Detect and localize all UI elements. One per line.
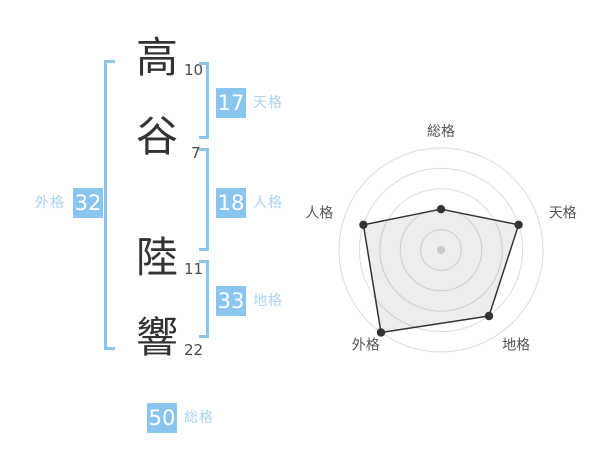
tenkaku-value-box: 17 bbox=[216, 88, 246, 118]
radar-vertex-dot bbox=[359, 221, 367, 229]
soukaku-value-box: 50 bbox=[147, 403, 177, 433]
name-char-1: 高 bbox=[134, 37, 180, 79]
radar-vertex-dot bbox=[377, 328, 385, 336]
jinkaku-value-box: 18 bbox=[216, 188, 246, 218]
radar-vertex-dot bbox=[485, 312, 493, 320]
stroke-count-4: 22 bbox=[184, 343, 203, 358]
tenkaku-label: 天格 bbox=[253, 96, 283, 110]
radar-vertex-dot bbox=[437, 205, 445, 213]
radar-axis-label: 地格 bbox=[502, 338, 530, 354]
gaikaku-label: 外格 bbox=[35, 196, 65, 210]
seimei-handan-result: 高 谷 陸 響 10 7 11 22 17 18 33 32 50 天格 人格 … bbox=[0, 0, 600, 470]
chikaku-bracket bbox=[199, 260, 209, 338]
name-char-2: 谷 bbox=[134, 116, 180, 158]
radar-axis-label: 人格 bbox=[305, 206, 333, 222]
tenkaku-bracket bbox=[199, 62, 209, 139]
name-char-3: 陸 bbox=[134, 237, 180, 279]
jinkaku-label: 人格 bbox=[253, 196, 283, 210]
chikaku-value-box: 33 bbox=[216, 286, 246, 316]
radar-center-dot bbox=[437, 246, 445, 254]
radar-axis-label: 天格 bbox=[549, 206, 577, 222]
chikaku-label: 地格 bbox=[253, 294, 283, 308]
radar-axis-label: 外格 bbox=[352, 338, 380, 354]
name-char-4: 響 bbox=[134, 317, 180, 359]
fortune-radar-container: 総格天格地格外格人格 bbox=[295, 115, 590, 360]
radar-vertex-dot bbox=[514, 221, 522, 229]
gaikaku-value-box: 32 bbox=[73, 188, 103, 218]
fortune-radar-chart: 総格天格地格外格人格 bbox=[295, 115, 590, 360]
soukaku-label: 総格 bbox=[184, 411, 214, 425]
radar-polygon bbox=[363, 209, 518, 332]
jinkaku-bracket bbox=[199, 148, 209, 251]
gaikaku-bracket bbox=[104, 60, 115, 350]
radar-axis-label: 総格 bbox=[427, 124, 455, 140]
